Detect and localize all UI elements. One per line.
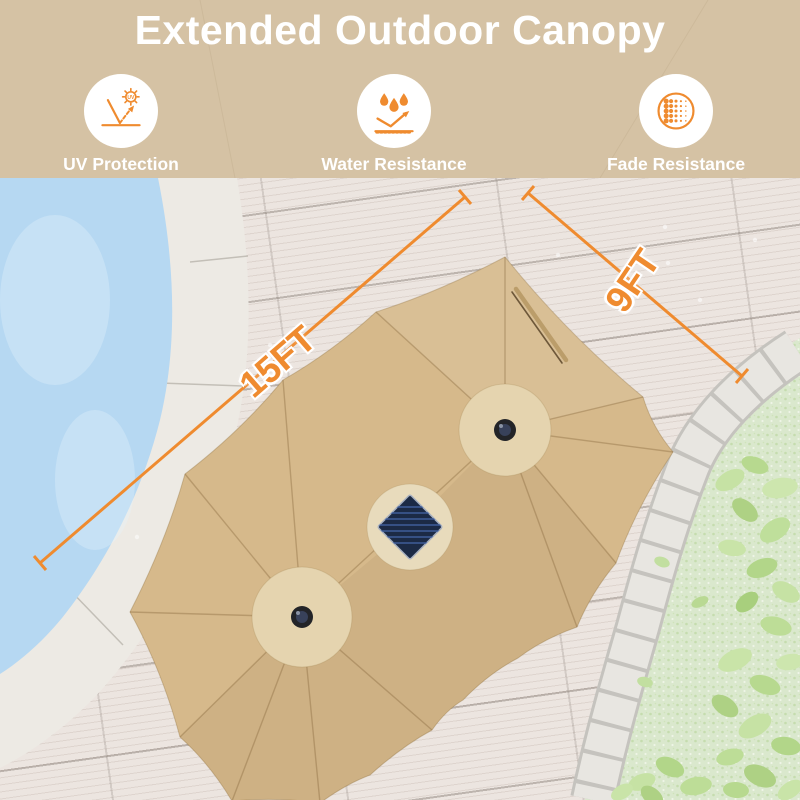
feature-label: Fade Resistance [561,154,791,175]
feature-badge [639,74,713,148]
canopy-hub-bottom [252,567,352,667]
feature-label: UV Protection [6,154,236,175]
feature-badge: UV [84,74,158,148]
fade-dots-icon [652,87,700,135]
svg-text:UV: UV [127,95,135,101]
feature-badge [357,74,431,148]
feature-uv-protection: UV UV Protection [6,74,236,175]
canopy-hub-top [459,384,551,476]
feature-fade-resistance: Fade Resistance [561,74,791,175]
feature-label: Water Resistance [279,154,509,175]
page-title: Extended Outdoor Canopy [0,7,800,54]
water-drops-icon [370,87,418,135]
feature-water-resistance: Water Resistance [279,74,509,175]
header-banner: Extended Outdoor Canopy [0,0,800,178]
product-infographic: 15FT 9FT Extended Outdoor Canopy [0,0,800,800]
uv-sun-icon: UV [97,87,145,135]
solar-panel-assembly [367,484,453,570]
